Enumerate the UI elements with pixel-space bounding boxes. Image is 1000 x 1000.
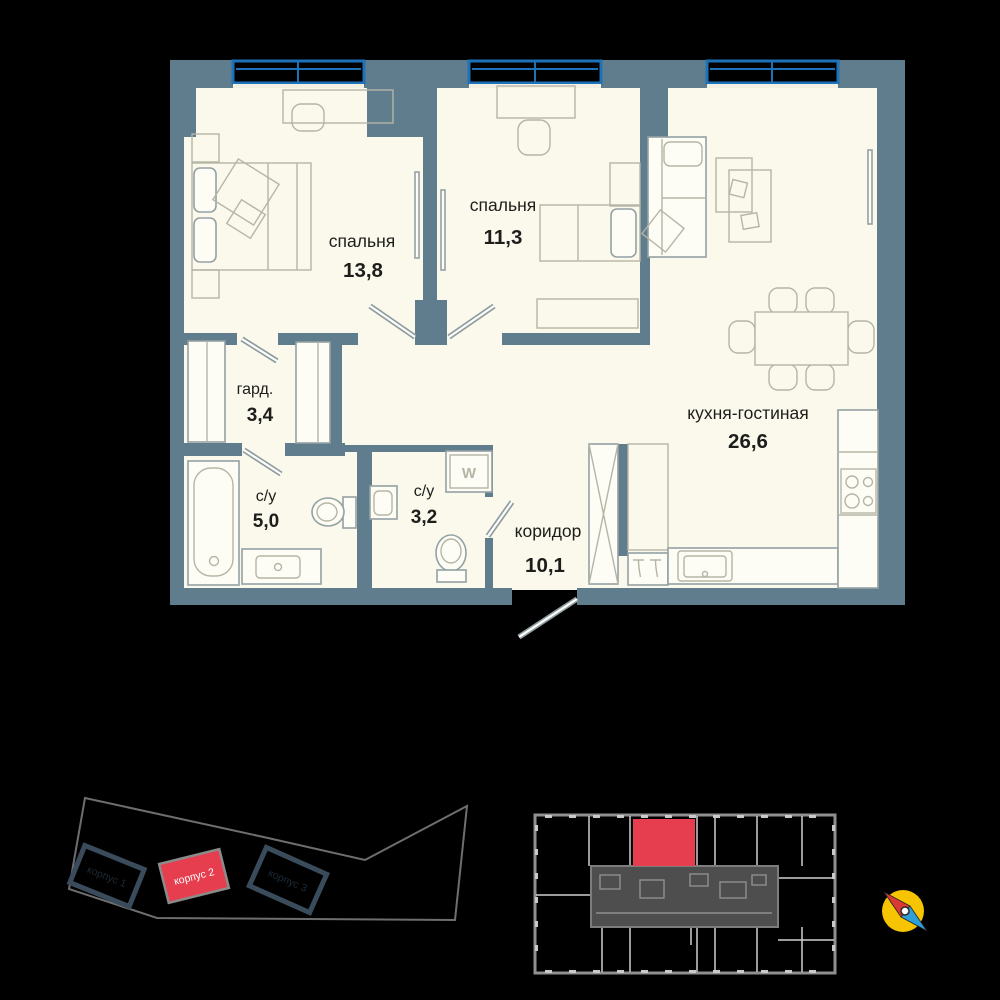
entrance-door (519, 599, 577, 637)
room-name-corridor: коридор (515, 521, 582, 541)
windows (233, 61, 838, 88)
room-area-kitchen-living: 26,6 (728, 430, 768, 453)
sofa (642, 137, 706, 257)
washing-machine-label: W (462, 465, 477, 482)
room-area-bedroom-2: 11,3 (484, 226, 523, 249)
corridor-furniture (589, 444, 668, 585)
pillow (611, 209, 636, 257)
bathtub (188, 461, 239, 585)
building-label: корпус 3 (266, 867, 309, 895)
building-marker-korpus-1[interactable]: корпус 1 (70, 845, 144, 906)
vanity-sink (242, 549, 321, 584)
room-area-bedroom-1: 13,8 (343, 259, 383, 282)
tv (868, 150, 872, 224)
dining-table (755, 312, 848, 365)
selected-unit-highlight[interactable] (633, 819, 695, 866)
washing-machine: W (446, 451, 492, 492)
window-kitchen (707, 61, 838, 88)
core-block (591, 866, 778, 927)
building-label: корпус 1 (85, 864, 128, 891)
pillow (194, 168, 216, 212)
closet (296, 342, 330, 443)
sink (370, 486, 397, 519)
window-bedroom-2 (469, 61, 601, 88)
toilet (312, 497, 356, 528)
scene: W (0, 0, 1000, 1000)
room-name-bathroom-1: с/у (256, 488, 276, 505)
room-name-bathroom-2: с/у (414, 483, 434, 500)
room-name-bedroom-1: спальня (329, 231, 395, 251)
room-area-wardrobe: 3,4 (247, 405, 274, 426)
room-name-kitchen-living: кухня-гостиная (687, 403, 808, 423)
window-bedroom-1 (233, 61, 364, 88)
screenshot-root: W (0, 0, 1000, 1000)
hall-bench (628, 553, 668, 585)
site-plan: корпус 1 корпус 2 корпус 3 (69, 798, 467, 920)
hall-cabinet (628, 444, 668, 550)
building-marker-korpus-3[interactable]: корпус 3 (249, 847, 326, 912)
room-name-bedroom-2: спальня (470, 195, 536, 215)
toilet (436, 535, 466, 582)
floor-plan: W (170, 60, 905, 637)
room-area-corridor: 10,1 (525, 554, 565, 577)
hall-closet (589, 444, 618, 584)
compass-pivot (901, 907, 909, 915)
compass-icon (882, 890, 927, 932)
tv (441, 190, 445, 270)
room-name-wardrobe: гард. (237, 381, 274, 398)
building-marker-korpus-2[interactable]: корпус 2 (159, 849, 229, 903)
room-area-bathroom-2: 3,2 (411, 507, 437, 528)
pillow (194, 218, 216, 262)
tv (415, 172, 419, 258)
room-area-bathroom-1: 5,0 (253, 511, 279, 532)
floor-overview (535, 815, 835, 973)
